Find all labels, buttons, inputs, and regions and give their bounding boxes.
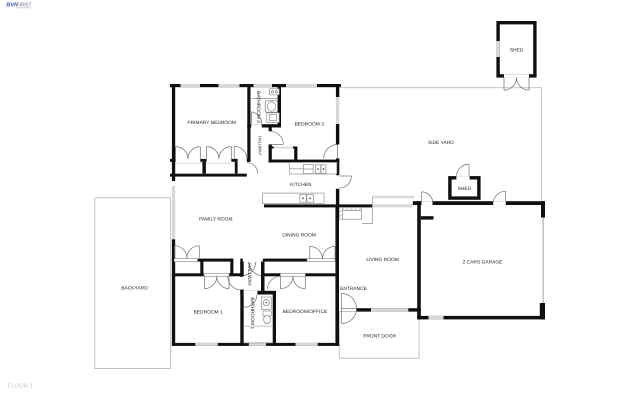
- svg-text:BACKYARD: BACKYARD: [121, 286, 148, 292]
- svg-text:KITCHEN: KITCHEN: [290, 182, 312, 188]
- svg-text:HALLWAY: HALLWAY: [257, 136, 262, 156]
- svg-text:DINING ROOM: DINING ROOM: [282, 233, 316, 239]
- svg-text:BATHROOM 1: BATHROOM 1: [249, 297, 255, 329]
- svg-text:SHED: SHED: [458, 186, 472, 192]
- svg-text:SHED: SHED: [510, 48, 524, 54]
- svg-text:HALLWAY: HALLWAY: [246, 263, 252, 286]
- svg-text:LIVING ROOM: LIVING ROOM: [366, 257, 399, 263]
- svg-text:SIDE YARD: SIDE YARD: [428, 140, 454, 146]
- svg-text:BEDROOM 1: BEDROOM 1: [194, 309, 224, 315]
- svg-text:ENTRANCE: ENTRANCE: [340, 286, 367, 292]
- svg-text:FRONT DOOR: FRONT DOOR: [363, 333, 396, 339]
- svg-text:BEDROOM 3: BEDROOM 3: [295, 121, 325, 127]
- svg-text:FLOOR 1: FLOOR 1: [8, 384, 33, 390]
- svg-text:FAMILY ROOM: FAMILY ROOM: [199, 216, 232, 222]
- svg-text:2 CARS GARAGE: 2 CARS GARAGE: [463, 259, 503, 265]
- svg-text:BATHROOM 2: BATHROOM 2: [255, 91, 261, 123]
- svg-text:BEDROOM/OFFICE: BEDROOM/OFFICE: [283, 309, 327, 315]
- svg-text:PRIMARY BEDROOM: PRIMARY BEDROOM: [187, 120, 236, 126]
